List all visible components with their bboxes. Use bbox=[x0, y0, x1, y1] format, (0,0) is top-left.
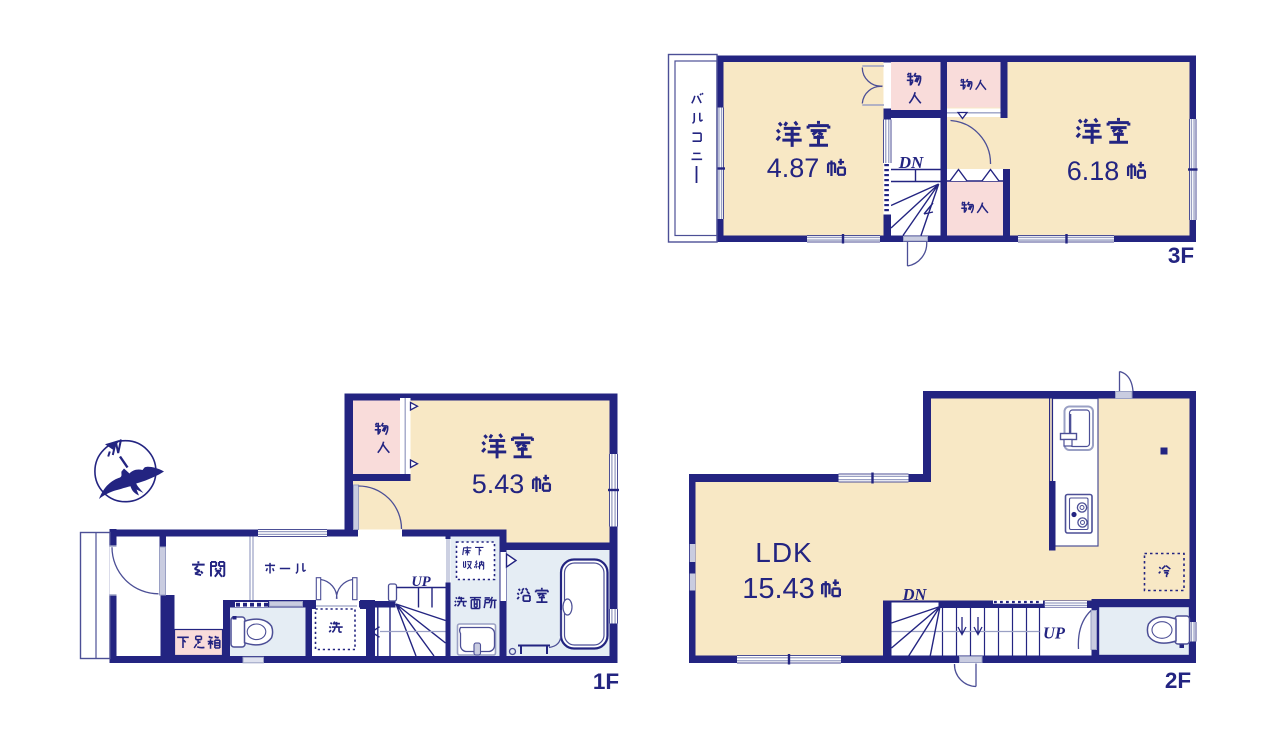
svg-text:5.43: 5.43 bbox=[472, 469, 525, 499]
svg-text:6.18: 6.18 bbox=[1067, 156, 1120, 186]
svg-text:LDK: LDK bbox=[755, 537, 812, 568]
svg-text:1F: 1F bbox=[593, 669, 619, 694]
svg-text:2F: 2F bbox=[1165, 668, 1191, 693]
svg-text:UP: UP bbox=[1043, 624, 1066, 643]
svg-text:4.87: 4.87 bbox=[767, 153, 820, 183]
svg-text:DN: DN bbox=[898, 153, 924, 172]
svg-text:15.43: 15.43 bbox=[742, 573, 815, 605]
svg-text:3F: 3F bbox=[1168, 243, 1194, 268]
svg-text:DN: DN bbox=[902, 585, 928, 604]
svg-text:UP: UP bbox=[411, 574, 430, 590]
